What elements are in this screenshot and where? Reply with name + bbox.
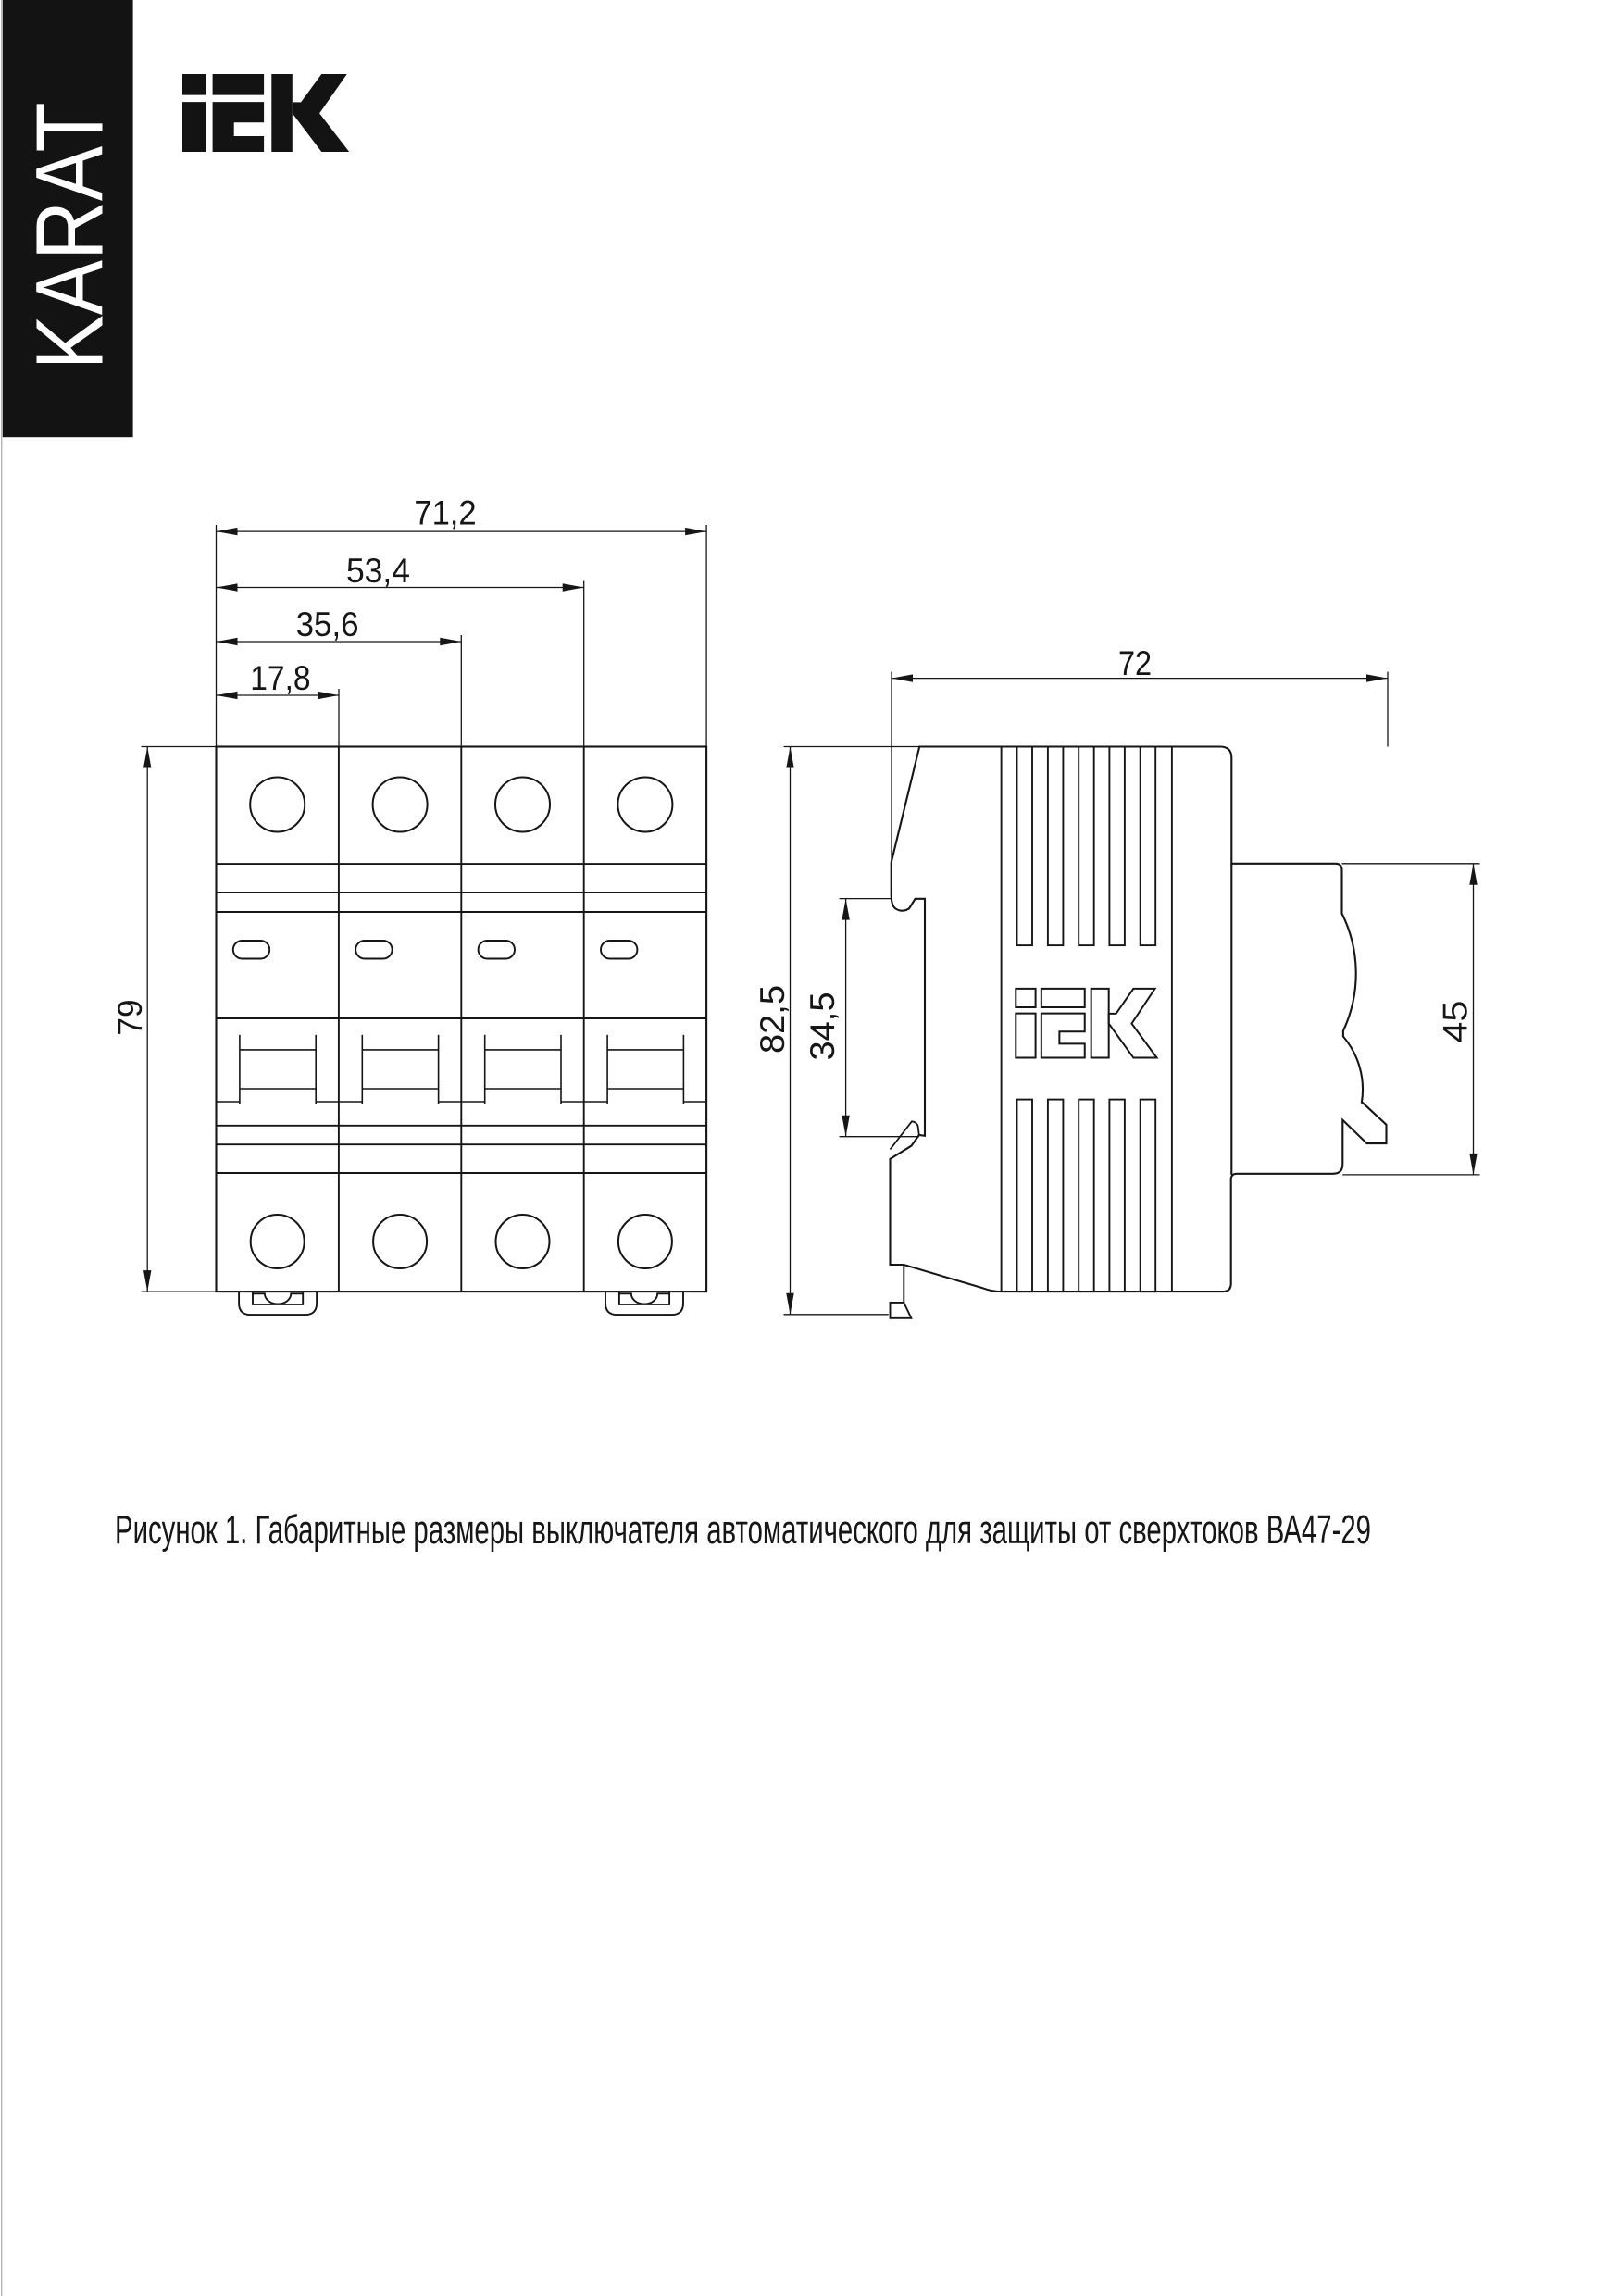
svg-text:79: 79	[111, 999, 149, 1035]
svg-text:53,4: 53,4	[346, 552, 410, 590]
svg-text:34,5: 34,5	[804, 992, 842, 1060]
svg-text:45: 45	[1436, 1001, 1474, 1043]
svg-text:72: 72	[1118, 644, 1152, 682]
svg-text:Рисунок 1. Габаритные размеры: Рисунок 1. Габаритные размеры выключател…	[115, 1508, 1371, 1553]
svg-text:71,2: 71,2	[414, 494, 476, 532]
svg-text:35,6: 35,6	[296, 605, 359, 643]
svg-text:KARAT: KARAT	[17, 102, 123, 369]
svg-text:82,5: 82,5	[754, 985, 792, 1054]
svg-text:17,8: 17,8	[250, 659, 310, 697]
